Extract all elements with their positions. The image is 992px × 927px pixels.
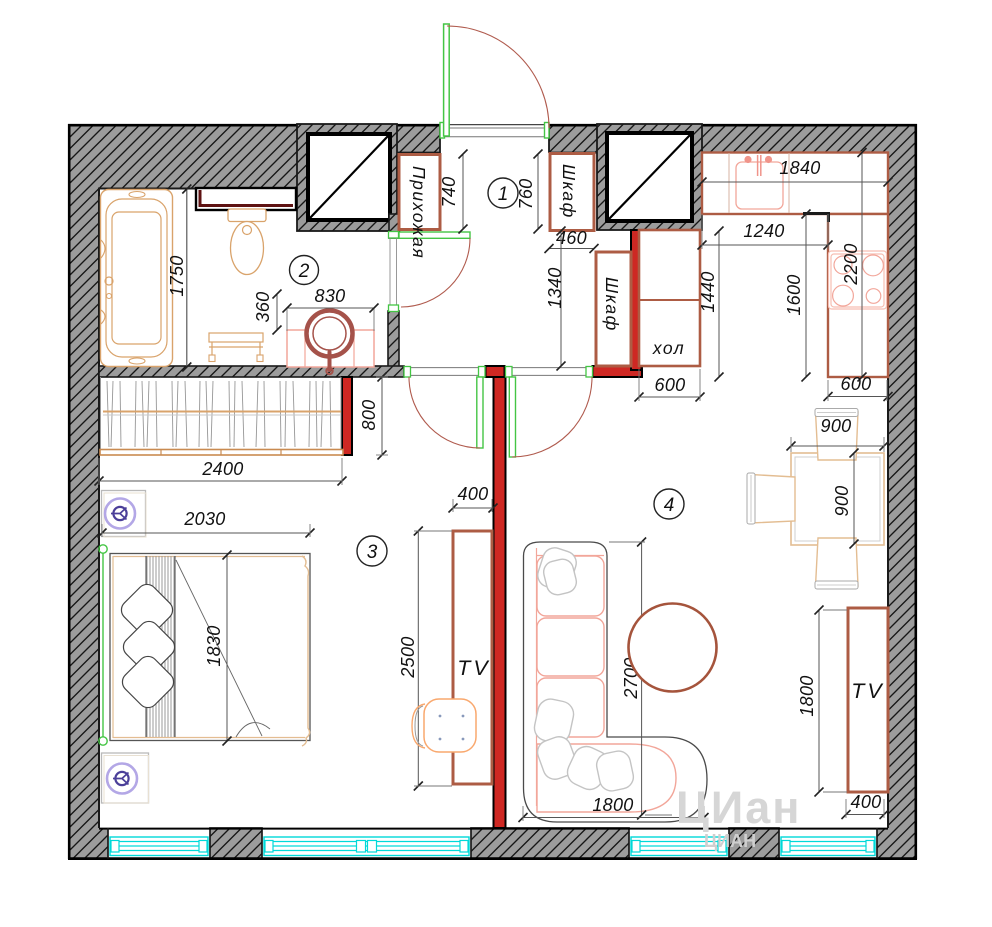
- svg-text:2400: 2400: [201, 459, 243, 479]
- svg-text:2030: 2030: [183, 509, 225, 529]
- svg-text:ЦИАН: ЦИАН: [704, 831, 756, 851]
- svg-text:830: 830: [315, 286, 346, 306]
- svg-text:600: 600: [841, 374, 872, 394]
- svg-text:2: 2: [298, 261, 310, 282]
- svg-text:1340: 1340: [545, 267, 565, 308]
- svg-text:740: 740: [439, 177, 459, 208]
- svg-text:Шкаф: Шкаф: [559, 164, 579, 219]
- svg-text:1: 1: [498, 184, 509, 205]
- svg-text:2200: 2200: [841, 243, 861, 285]
- svg-text:1440: 1440: [698, 271, 718, 312]
- svg-text:1240: 1240: [743, 221, 784, 241]
- svg-text:400: 400: [851, 792, 882, 812]
- svg-text:Шкаф: Шкаф: [602, 277, 622, 332]
- svg-text:360: 360: [253, 292, 273, 323]
- svg-text:900: 900: [832, 486, 852, 517]
- svg-text:1800: 1800: [797, 675, 817, 716]
- svg-text:800: 800: [359, 400, 379, 431]
- svg-text:760: 760: [516, 179, 536, 210]
- svg-text:1830: 1830: [204, 625, 224, 666]
- svg-text:4: 4: [664, 495, 675, 516]
- svg-text:600: 600: [655, 375, 686, 395]
- svg-text:TV: TV: [851, 679, 884, 703]
- svg-text:TV: TV: [457, 656, 490, 680]
- svg-text:3: 3: [367, 542, 378, 563]
- svg-text:ЦИан: ЦИан: [676, 782, 801, 833]
- svg-text:1840: 1840: [779, 158, 820, 178]
- svg-text:1800: 1800: [592, 795, 633, 815]
- svg-text:2500: 2500: [398, 636, 418, 678]
- svg-text:900: 900: [821, 416, 852, 436]
- svg-text:хол: хол: [652, 338, 685, 358]
- svg-text:Прихожая: Прихожая: [409, 166, 429, 259]
- svg-text:400: 400: [458, 484, 489, 504]
- svg-text:1750: 1750: [167, 255, 187, 296]
- svg-text:1600: 1600: [784, 274, 804, 315]
